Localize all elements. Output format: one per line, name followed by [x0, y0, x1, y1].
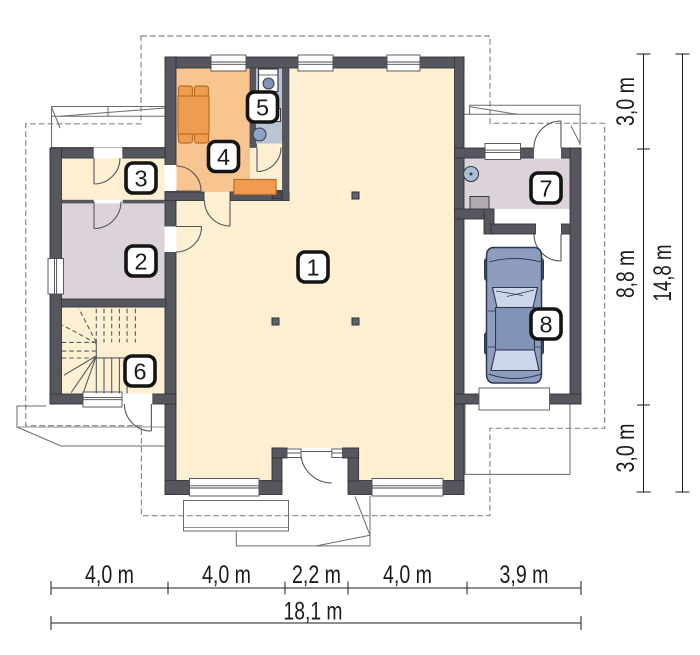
svg-text:4,0 m: 4,0 m: [85, 561, 134, 589]
svg-text:1: 1: [306, 255, 319, 281]
svg-text:18,1 m: 18,1 m: [284, 598, 343, 626]
svg-text:3: 3: [134, 166, 147, 192]
svg-text:2: 2: [134, 249, 147, 275]
svg-text:8,8 m: 8,8 m: [612, 250, 640, 298]
svg-text:3,0 m: 3,0 m: [612, 77, 640, 126]
svg-text:2,2 m: 2,2 m: [292, 561, 341, 589]
svg-text:5: 5: [256, 95, 269, 121]
svg-text:4: 4: [217, 144, 230, 170]
svg-text:4,0 m: 4,0 m: [383, 561, 432, 589]
svg-text:3,9 m: 3,9 m: [500, 561, 549, 589]
svg-text:6: 6: [133, 359, 146, 385]
svg-text:7: 7: [539, 176, 552, 202]
svg-text:4,0 m: 4,0 m: [202, 561, 251, 589]
svg-text:14,8 m: 14,8 m: [649, 245, 677, 302]
svg-text:8: 8: [539, 312, 552, 338]
svg-text:3,0 m: 3,0 m: [612, 424, 640, 473]
